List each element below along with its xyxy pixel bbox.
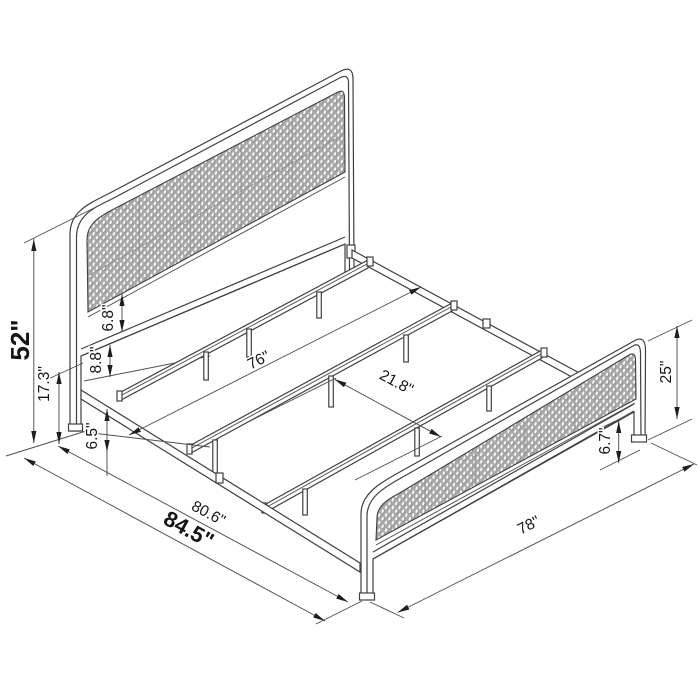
svg-text:8.8": 8.8": [88, 346, 105, 373]
svg-text:78": 78": [515, 513, 543, 538]
svg-text:25": 25": [658, 361, 675, 384]
svg-text:6.7": 6.7": [597, 427, 614, 454]
svg-text:6.5": 6.5": [84, 422, 101, 449]
svg-text:17.3": 17.3": [36, 366, 53, 402]
svg-text:52": 52": [5, 319, 35, 360]
svg-text:21.8": 21.8": [376, 367, 415, 399]
svg-text:6.8": 6.8": [100, 304, 117, 331]
